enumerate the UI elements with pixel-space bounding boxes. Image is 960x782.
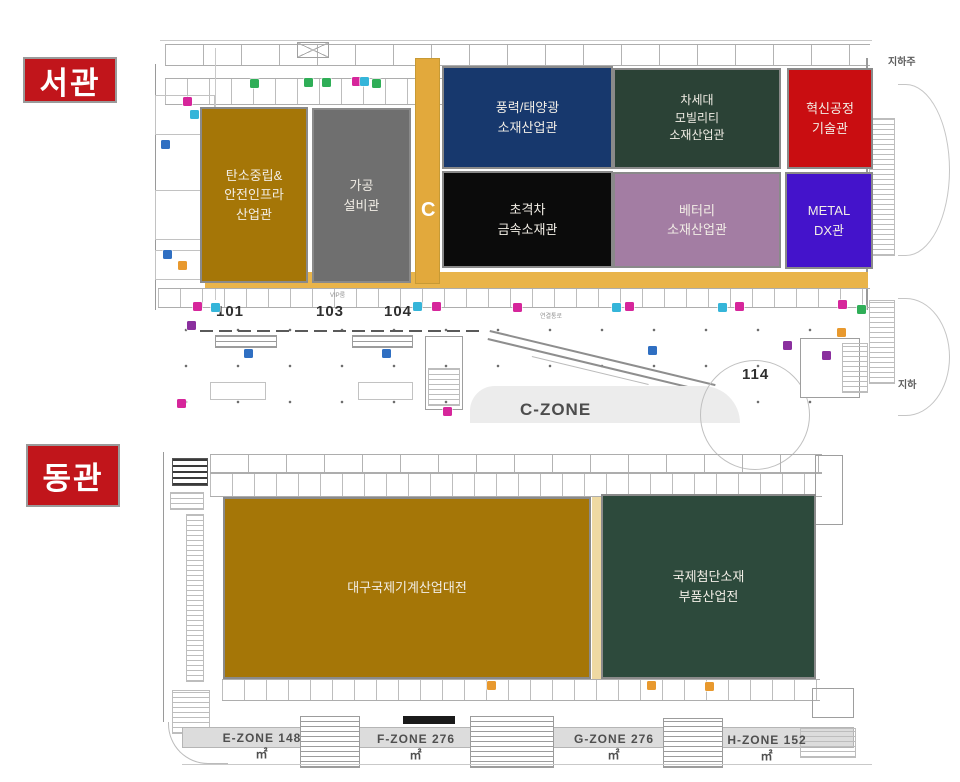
hall-next-gen-mobility-label: 차세대 모빌리티 소재산업관 [669, 92, 724, 144]
plan-room-strip [210, 454, 822, 473]
plan-wall [160, 40, 872, 41]
ramp-curve [168, 722, 228, 764]
hall-battery: 베터리 소재산업관 [613, 172, 781, 268]
stair-block [815, 455, 843, 525]
east-hall-badge: 동관 [26, 444, 120, 507]
zone-label-g: G-ZONE 276㎡ [572, 732, 656, 763]
west-hall-badge: 서관 [23, 57, 117, 103]
hall-innovation-process: 혁신공정 기술관 [787, 68, 873, 169]
stair-hatch [170, 492, 204, 510]
ramp-curve [898, 84, 950, 256]
escalator-hatch [869, 300, 895, 384]
hall-advanced-materials: 국제첨단소재 부품산업전 [601, 494, 816, 679]
hall-ultra-metal: 초격차 금속소재관 [442, 171, 613, 268]
dock-hatch [470, 716, 554, 768]
hall-daegu-machinery-label: 대구국제기계산업대전 [347, 578, 467, 598]
zone-label-f: F-ZONE 276㎡ [375, 732, 457, 763]
plan-wall [200, 330, 480, 332]
c-zone-label: C-ZONE [520, 400, 591, 420]
hall-battery-label: 베터리 소재산업관 [667, 201, 727, 240]
room-number-103: 103 [316, 303, 344, 320]
room-number-114: 114 [742, 366, 769, 383]
hall-divider-strip [592, 497, 601, 679]
hall-wind-solar: 풍력/태양광 소재산업관 [442, 66, 613, 169]
hall-carbon-neutral: 탄소중립& 안전인프라 산업관 [200, 107, 308, 283]
room-number-104: 104 [384, 303, 412, 320]
stair-block [812, 688, 854, 718]
hall-advanced-materials-label: 국제첨단소재 부품산업전 [673, 567, 745, 606]
hall-innovation-process-label: 혁신공정 기술관 [806, 99, 854, 138]
room-number-101: 101 [216, 303, 244, 320]
zone-label-e: E-ZONE 148㎡ [222, 731, 302, 762]
dock-leveler [403, 716, 455, 724]
dock-hatch [300, 716, 360, 768]
dock-hatch [663, 718, 723, 768]
hall-wind-solar-label: 풍력/태양광 소재산업관 [496, 98, 559, 137]
hall-processing-equipment-label: 가공 설비관 [344, 176, 380, 215]
plan-room [358, 382, 413, 400]
hall-metal-dx: METAL DX관 [785, 172, 873, 269]
corridor-hatch [186, 514, 204, 682]
floorplan-page: 서관 [0, 0, 960, 782]
zone-label-h: H-ZONE 152㎡ [725, 733, 809, 764]
elevator-icon [297, 42, 329, 58]
c-corridor-strip: C [415, 58, 440, 284]
plan-room-strip [165, 44, 870, 66]
stair-hatch [428, 368, 460, 406]
hall-processing-equipment: 가공 설비관 [312, 108, 411, 283]
vip-room-note: VIP룸 [330, 290, 345, 299]
hall-next-gen-mobility: 차세대 모빌리티 소재산업관 [613, 68, 781, 169]
ramp-curve [898, 298, 950, 416]
plan-room-strip [158, 288, 870, 308]
plan-room-strip [222, 679, 820, 701]
east-hall-badge-label: 동관 [42, 453, 103, 498]
basement-label: 지하 [898, 376, 916, 391]
plan-room [210, 382, 266, 400]
hall-daegu-machinery: 대구국제기계산업대전 [223, 497, 591, 679]
plan-wall [163, 452, 164, 722]
hall-metal-dx-label: METAL DX관 [808, 201, 850, 240]
stair-hatch [172, 458, 208, 486]
booth-table [215, 335, 277, 348]
plan-wall [182, 764, 872, 765]
corridor-note: 연결통로 [540, 311, 562, 320]
booth-table [352, 335, 413, 348]
hall-ultra-metal-label: 초격차 금속소재관 [498, 200, 558, 239]
stair-hatch [842, 343, 868, 393]
west-hall-badge-label: 서관 [39, 58, 100, 103]
basement-parking-label: 지하주 [888, 53, 916, 68]
c-corridor-letter: C [421, 199, 435, 222]
hall-carbon-neutral-label: 탄소중립& 안전인프라 산업관 [224, 166, 284, 225]
